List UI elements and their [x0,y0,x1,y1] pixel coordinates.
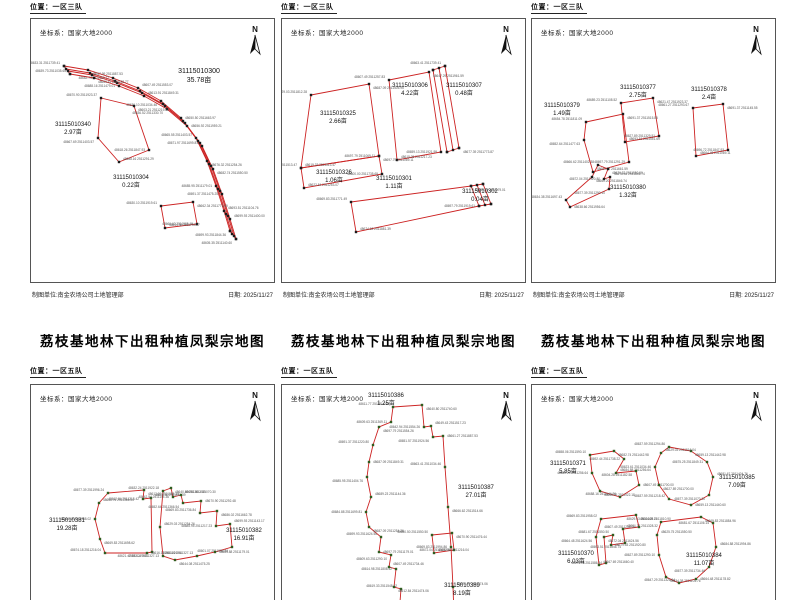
north-label: N [247,25,263,34]
vertex-marker [430,425,432,427]
footer-unit: 制图单位:南金农场公司土地管理部 [32,290,124,299]
vertex-coordinate-text: 48607.49 2511257.83 [354,75,385,79]
vertex-marker [212,168,214,170]
vertex-marker [446,151,448,153]
vertex-coordinate-text: 48669.83 2511884.96 [705,519,736,523]
parcel-map-canvas: 48611.77 2511814.6648640.80 2511740.6048… [282,385,525,600]
vertex-coordinate-text: 48665.55 2511403.57 [161,133,192,137]
vertex-coordinate-text: 48632.24 2511327.13 [128,554,159,558]
parcel-area-label: 2.75亩 [629,91,647,99]
vertex-marker [229,523,231,525]
vertex-coordinate-text: 48671.97 2511699.81 [167,141,198,145]
parcel-area-label: 5.85亩 [559,467,577,475]
parcel-map-canvas: 48633.31 2511739.4148657.99 2511887.5348… [31,19,274,282]
vertex-marker [388,566,390,568]
parcel-id-label: 31115010384 [686,553,722,559]
north-label: N [498,391,514,400]
vertex-coordinate-text: 48692.44 2511738.22 [589,457,620,461]
vertex-marker [388,79,390,81]
vertex-marker [635,514,637,516]
vertex-coordinate-text: 48629.03 2511516.04 [665,448,696,452]
vertex-marker [350,201,352,203]
coordinate-system-label: 坐标系：国家大地2000 [291,393,363,403]
vertex-marker [390,421,392,423]
vertex-coordinate-text: 48619.33 2511513.47 [282,163,297,167]
vertex-marker [180,117,182,119]
vertex-coordinate-text: 48659.13 2511921.99 [406,150,437,154]
parcel-area-label: 11.07亩 [694,559,715,567]
location-label: 位置：一区三队 [281,4,337,14]
vertex-marker [380,536,382,538]
location-label: 位置：一区三队 [30,4,86,14]
vertex-coordinate-text: 48613.91 2511849.31 [148,91,179,95]
vertex-marker [186,125,188,127]
vertex-coordinate-text: 48693.51 2511551.69 [629,137,660,141]
vertex-marker [432,69,434,71]
parcel-area-label: 1.49亩 [553,109,571,117]
vertex-marker [118,85,120,87]
map-panel-group: 位置：一区三队 48654.78 2511811.0948691.37 2511… [531,0,776,299]
vertex-coordinate-text: 48684.88 2511994.86 [720,542,751,546]
vertex-coordinate-text: 48650.50 2511070.30 [185,490,216,494]
vertex-marker [652,97,654,99]
vertex-coordinate-text: 48634.38 2511697.43 [532,195,562,199]
vertex-marker [585,121,587,123]
parcel-id-label: 31115010386 [368,393,404,399]
vertex-marker [598,564,600,566]
vertex-marker [660,521,662,523]
vertex-marker [160,205,162,207]
parcel-area-label: 0.04亩 [471,195,489,203]
parcel-boundary [445,66,459,148]
vertex-coordinate-text: 48629.03 2511069.11 [626,517,657,521]
vertex-marker [591,472,593,474]
vertex-marker [668,498,670,500]
parcel-map-canvas: 48654.78 2511811.0948691.37 2511515.8548… [532,19,775,282]
parcel-id-label: 31115010326 [316,170,352,176]
vertex-marker [603,536,605,538]
vertex-coordinate-text: 48634.38 2511104.76 [670,579,701,583]
map-title: 荔枝基地林下出租种植凤梨宗地图 [531,330,776,350]
vertex-coordinate-text: 48647.29 2511961.59 [433,74,464,78]
vertex-coordinate-text: 48642.94 2511144.36 [138,495,169,499]
vertex-marker [395,568,397,570]
vertex-marker [591,176,593,178]
location-label: 位置：一区五队 [30,368,86,378]
map-panel-group: 位置：一区三队 48633.31 2511739.4148657.99 2511… [30,0,275,299]
vertex-marker [215,185,217,187]
vertex-marker [223,210,225,212]
vertex-marker [620,102,622,104]
vertex-marker [143,95,145,97]
location-label: 位置：一区五队 [281,368,337,378]
parcel-id-label: 31115010325 [320,111,356,117]
parcel-id-label: 31115010302 [462,189,498,195]
vertex-marker [365,511,367,513]
vertex-marker [303,187,305,189]
vertex-marker [565,199,567,201]
vertex-coordinate-text: 48659.13 2511440.60 [695,503,726,507]
vertex-coordinate-text: 48670.90 2511923.37 [66,93,97,97]
vertex-coordinate-text: 48652.64 2511477.63 [549,142,580,146]
vertex-marker [162,555,164,557]
vertex-coordinate-text: 48697.79 2511069.11 [344,154,375,158]
vertex-coordinate-text: 48682.74 2511442.98 [618,453,649,457]
parcel-area-label: 2.97亩 [64,128,82,136]
vertex-coordinate-text: 48688.16 2511479.01 [84,84,115,88]
north-arrow: N [748,25,764,61]
vertex-marker [174,559,176,561]
vertex-coordinate-text: 48629.03 2511254.26 [164,522,195,526]
vertex-marker [381,173,383,175]
parcel-area-label: 16.91亩 [233,534,254,542]
vertex-marker [196,555,198,557]
vertex-coordinate-text: 48678.46 2511846.74 [614,172,645,176]
vertex-coordinate-text: 48691.37 2511220.80 [338,440,369,444]
vertex-marker [219,190,221,192]
vertex-marker [715,546,717,548]
vertex-marker [421,404,423,406]
parcel-area-label: 7.09亩 [728,481,746,489]
footer-date: 日期: 2025/11/27 [479,290,524,299]
north-arrow: N [748,391,764,427]
vertex-marker [700,516,702,518]
vertex-coordinate-text: 48609.63 2511369.11 [356,420,387,424]
vertex-marker [433,552,435,554]
north-needle-icon [248,34,262,56]
vertex-coordinate-text: 48664.48 2511178.82 [700,577,731,581]
map-panel-group: 位置：一区三队 48629.03 2511812.2848687.09 2511… [281,0,526,299]
parcel-id-label: 31115010377 [620,85,656,91]
parcel-area-label: 2.66亩 [329,117,347,125]
vertex-marker [609,176,611,178]
parcel-id-label: 31115010387 [458,485,494,491]
vertex-marker [476,184,478,186]
vertex-marker [665,576,667,578]
parcel-area-label: 27.01亩 [465,491,486,499]
vertex-marker [482,183,484,185]
parcel-boundary [566,165,610,207]
parcel-area-label: 8.19亩 [453,589,471,597]
vertex-coordinate-text: 48637.59 2511218.42 [634,494,665,498]
vertex-marker [160,100,162,102]
footer-unit: 制图单位:南金农场公司土地管理部 [283,290,375,299]
vertex-coordinate-text: 48614.98 2511808.52 [361,567,392,571]
vertex-coordinate-text: 48644.08 2511475.25 [179,562,210,566]
vertex-marker [622,113,624,115]
vertex-marker [470,185,472,187]
vertex-coordinate-text: 48603.21 2511219.61 [138,108,169,112]
vertex-coordinate-text: 48681.67 2511106.14 [678,521,709,525]
location-label: 位置：一区五队 [531,368,587,378]
vertex-coordinate-text: 48661.27 2511293.67 [658,103,689,107]
vertex-marker [355,231,357,233]
vertex-coordinate-text: 48627.89 2511700.00 [663,487,694,491]
vertex-coordinate-text: 48609.63 2511290.10 [356,557,387,561]
north-label: N [247,391,263,400]
vertex-coordinate-text: 48687.09 2511849.31 [373,460,404,464]
panel-footer: 制图单位:南金农场公司土地管理部 日期: 2025/11/27 [531,290,776,299]
vertex-coordinate-text: 48625.75 2511550.50 [661,530,692,534]
vertex-coordinate-text: 48619.33 2511548.12 [366,584,397,588]
vertex-coordinate-text: 48630.10 2511034.46 [126,103,157,107]
north-arrow: N [247,391,263,427]
vertex-coordinate-text: 48669.83 2511698.62 [104,541,135,545]
vertex-marker [229,218,231,220]
parcel-map-canvas: 48658.06 2511590.1048682.74 2511442.9848… [532,385,775,600]
page: 荔枝基地林下出租种植凤梨宗地图 荔枝基地林下出租种植凤梨宗地图 荔枝基地林下出租… [0,0,800,600]
vertex-marker [214,551,216,553]
vertex-marker [378,426,380,428]
north-needle-icon [499,400,513,422]
vertex-marker [216,510,218,512]
vertex-coordinate-text: 48634.38 2511733.27 [169,223,200,227]
vertex-marker [159,526,161,528]
vertex-coordinate-text: 48666.62 2511327.13 [162,551,193,555]
vertex-marker [133,105,135,107]
vertex-marker [100,97,102,99]
map-frame: 48633.31 2511739.4148657.99 2511887.5348… [30,18,275,283]
vertex-marker [227,215,229,217]
vertex-coordinate-text: 48604.28 2511182.58 [601,473,632,477]
vertex-marker [607,168,609,170]
location-label: 位置：一区三队 [531,4,587,14]
vertex-marker [595,536,597,538]
map-title: 荔枝基地林下出租种植凤梨宗地图 [281,330,526,350]
vertex-marker [695,155,697,157]
vertex-marker [613,450,615,452]
vertex-marker [104,552,106,554]
vertex-marker [628,161,630,163]
panel-footer: 制图单位:南金农场公司土地管理部 日期: 2025/11/27 [281,290,526,299]
footer-unit: 制图单位:南金农场公司土地管理部 [533,290,625,299]
map-panel-group: 位置：一区五队 48677.39 2511996.2448613.91 2511… [30,360,275,600]
vertex-marker [370,496,372,498]
vertex-marker [229,230,231,232]
vertex-coordinate-text: 48664.48 2511624.56 [561,539,592,543]
vertex-marker [610,544,612,546]
parcel-area-label: 1.32亩 [619,191,637,199]
vertex-marker [656,534,658,536]
vertex-marker [654,466,656,468]
parcel-area-label: 2.4亩 [702,93,716,101]
vertex-coordinate-text: 48685.95 2511404.76 [332,479,363,483]
vertex-marker [490,203,492,205]
parcel-map-canvas: 48629.03 2511812.2848687.09 2511405.9548… [282,19,525,282]
vertex-coordinate-text: 48677.39 2511070.30 [674,497,705,501]
vertex-coordinate-text: 48679.53 2511920.80 [615,543,646,547]
vertex-coordinate-text: 48672.04 2511624.56 [608,539,639,543]
vertex-coordinate-text: 48666.62 2511514.66 [452,509,483,513]
vertex-coordinate-text: 48649.43 2511517.23 [435,421,466,425]
vertex-marker [221,193,223,195]
parcel-id-label: 31115010371 [550,461,586,467]
vertex-marker [141,92,143,94]
vertex-marker [112,77,114,79]
north-needle-icon [749,400,763,422]
parcel-id-label: 31115010381 [49,518,85,524]
parcel-id-label: 31115010304 [113,175,149,181]
vertex-marker [164,227,166,229]
vertex-coordinate-text: 48676.32 2511254.26 [211,163,242,167]
vertex-marker [300,167,302,169]
vertex-coordinate-text: 48629.03 2511812.28 [282,90,307,94]
vertex-coordinate-text: 48693.51 2511104.76 [228,206,259,210]
parcel-id-label: 31115010382 [226,528,262,534]
vertex-marker [447,506,449,508]
parcel-area-label: 4.22亩 [401,89,419,97]
north-arrow: N [247,25,263,61]
vertex-coordinate-text: 48640.80 2511740.60 [426,407,457,411]
vertex-marker [484,204,486,206]
vertex-coordinate-text: 48632.24 2511922.18 [128,486,159,490]
north-arrow: N [498,391,514,427]
vertex-coordinate-text: 48699.93 2511143.17 [234,519,265,523]
vertex-marker [431,534,433,536]
vertex-coordinate-text: 48619.33 2511513.47 [305,163,336,167]
coordinate-system-label: 坐标系：国家大地2000 [541,27,613,37]
vertex-coordinate-text: 48667.69 2511660.40 [603,560,634,564]
vertex-marker [451,532,453,534]
vertex-marker [423,426,425,428]
north-label: N [748,25,764,34]
vertex-marker [137,87,139,89]
vertex-coordinate-text: 48697.79 2511919.61 [444,204,475,208]
vertex-coordinate-text: 48663.41 2511739.41 [410,61,441,65]
vertex-coordinate-text: 48681.67 2511550.50 [578,530,609,534]
parcel-area-label: 1.11亩 [385,182,402,190]
vertex-coordinate-text: 48670.90 2511292.48 [205,499,236,503]
parcel-id-label: 31115010307 [446,83,482,89]
footer-date: 日期: 2025/11/27 [729,290,774,299]
vertex-coordinate-text: 48684.88 2511179.01 [219,550,250,554]
vertex-marker [215,525,217,527]
parcel-area-label: 35.78亩 [187,75,212,84]
vertex-coordinate-text: 48607.49 2511553.07 [142,83,173,87]
vertex-coordinate-text: 48688.16 2511291.29 [123,157,154,161]
vertex-marker [592,171,594,173]
parcel-area-label: 1.25亩 [377,399,395,407]
coordinate-system-label: 坐标系：国家大地2000 [541,393,613,403]
vertex-marker [98,502,100,504]
parcel-id-label: 31115010370 [558,551,594,557]
vertex-marker [366,476,368,478]
parcel-id-label: 31115010306 [392,83,428,89]
coordinate-system-label: 坐标系：国家大地2000 [291,27,363,37]
vertex-marker [622,528,624,530]
map-frame: 48654.78 2511811.0948691.37 2511515.8548… [531,18,776,283]
vertex-coordinate-text: 48607.49 2511734.46 [393,562,424,566]
vertex-marker [310,94,312,96]
vertex-marker [184,122,186,124]
vertex-coordinate-text: 48667.69 2511403.57 [63,140,94,144]
vertex-coordinate-text: 48669.83 2511771.49 [316,197,347,201]
vertex-marker [164,105,166,107]
vertex-marker [97,137,99,139]
vertex-marker [583,139,585,141]
vertex-marker [368,83,370,85]
north-label: N [748,391,764,400]
vertex-coordinate-text: 48605.35 2511140.60 [201,241,232,245]
vertex-marker [635,470,637,472]
vertex-coordinate-text: 48654.78 2511811.09 [551,117,582,121]
parcel-id-label: 31115010300 [178,68,220,75]
vertex-coordinate-text: 48691.37 2511515.85 [627,116,658,120]
north-needle-icon [248,400,262,422]
vertex-marker [210,165,212,167]
north-needle-icon [749,34,763,56]
vertex-marker [438,67,440,69]
vertex-coordinate-text: 48659.13 2511442.98 [695,453,726,457]
vertex-coordinate-text: 48663.41 2511034.46 [410,462,441,466]
map-frame: 48611.77 2511814.6648640.80 2511740.6048… [281,384,526,600]
vertex-coordinate-text: 48689.23 2511108.52 [586,98,617,102]
panel-footer: 制图单位:南金农场公司土地管理部 日期: 2025/11/27 [30,290,275,299]
vertex-coordinate-text: 48699.93 2511400.00 [234,214,265,218]
vertex-marker [692,107,694,109]
vertex-marker [206,160,208,162]
vertex-coordinate-text: 48689.23 2511144.36 [375,492,406,496]
vertex-coordinate-text: 48650.50 2511663.97 [185,116,216,120]
north-arrow: N [498,25,514,61]
vertex-marker [478,205,480,207]
vertex-coordinate-text: 48652.64 2511216.04 [438,548,469,552]
map-panel-group: 位置：一区五队 48658.06 2511590.1048682.74 2511… [531,360,776,600]
vertex-marker [393,586,395,588]
vertex-marker [378,155,380,157]
vertex-marker [658,484,660,486]
vertex-marker [444,466,446,468]
vertex-marker [597,164,599,166]
parcel-id-label: 31115010385 [719,475,755,481]
vertex-marker [368,526,370,528]
vertex-marker [118,161,120,163]
vertex-marker [233,235,235,237]
vertex-coordinate-text: 48630.10 2511919.61 [126,201,157,205]
vertex-coordinate-text: 48674.18 2511881.39 [360,227,391,231]
north-needle-icon [499,34,513,56]
parcel-map-canvas: 48677.39 2511996.2448613.91 2511885.1548… [31,385,274,600]
vertex-marker [200,500,202,502]
vertex-marker [444,65,446,67]
vertex-marker [390,554,392,556]
vertex-coordinate-text: 48618.26 2511847.93 [114,148,145,152]
vertex-coordinate-text: 48638.66 2511956.64 [574,205,605,209]
vertex-marker [712,476,714,478]
vertex-marker [148,149,150,151]
vertex-marker [440,151,442,153]
parcel-id-label: 31115010378 [691,87,727,93]
vertex-marker [107,492,109,494]
vertex-marker [93,77,95,79]
parcel-boundary [439,68,453,150]
vertex-marker [87,69,89,71]
vertex-coordinate-text: 48666.62 2511402.38 [563,160,594,164]
coordinate-system-label: 坐标系：国家大地2000 [40,393,112,403]
vertex-coordinate-text: 48675.25 2511849.31 [672,460,703,464]
vertex-marker [162,490,164,492]
vertex-coordinate-text: 48662.34 2511771.49 [197,204,228,208]
vertex-coordinate-text: 48685.95 2511179.01 [181,184,212,188]
vertex-coordinate-text: 48612.84 2511474.06 [398,589,429,593]
vertex-marker [623,458,625,460]
vertex-marker [722,103,724,105]
parcel-id-label: 31115010379 [544,103,580,109]
vertex-coordinate-text: 48623.61 2511034.46 [620,465,651,469]
vertex-marker [170,487,172,489]
vertex-coordinate-text: 48691.37 2511475.25 [187,192,218,196]
vertex-coordinate-text: 48669.83 2511736.84 [165,508,196,512]
